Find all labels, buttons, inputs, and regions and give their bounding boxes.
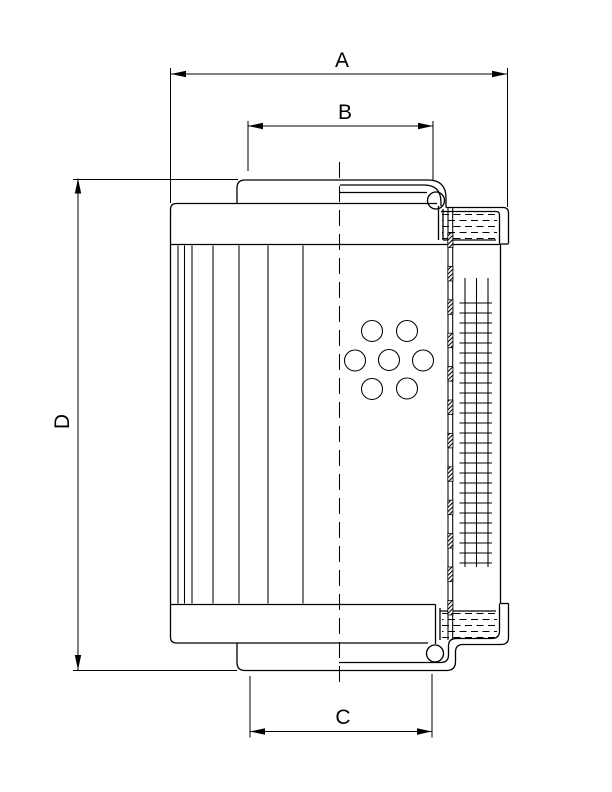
o-ring-top bbox=[428, 192, 445, 209]
bond-adhesive-bottom bbox=[442, 614, 497, 638]
arrowhead-right bbox=[418, 123, 433, 129]
perforation-hole bbox=[379, 350, 400, 371]
core-tube-hatch bbox=[448, 467, 453, 482]
core-tube-hatch bbox=[448, 266, 453, 281]
perforation-hole bbox=[413, 350, 434, 371]
top-spigot-left-edge bbox=[237, 180, 245, 203]
arrowhead-left bbox=[250, 728, 265, 734]
pleated-media bbox=[178, 246, 303, 604]
core-tube-hatch bbox=[448, 367, 453, 382]
dimension-d: D bbox=[51, 179, 238, 671]
dimension-label-a: A bbox=[335, 49, 349, 72]
end-cap-outline bbox=[171, 204, 438, 644]
arrowhead-right bbox=[492, 71, 507, 77]
bottom-spigot-edge bbox=[237, 643, 339, 671]
core-tube-hatch bbox=[448, 500, 453, 515]
dimension-label-d: D bbox=[51, 414, 74, 429]
dimension-label-b: B bbox=[338, 101, 352, 124]
drawing-sheet: A B C D bbox=[0, 0, 612, 792]
filter-element-technical-drawing: A B C D bbox=[0, 0, 612, 792]
dimension-a: A bbox=[171, 49, 508, 207]
arrowhead-left bbox=[171, 71, 186, 77]
arrowhead-bottom bbox=[75, 655, 81, 670]
bottom-shell-wrap-inner bbox=[339, 604, 500, 663]
core-tube-hatch-segments bbox=[448, 233, 453, 615]
core-tube-hatch bbox=[448, 333, 453, 348]
perforation-hole bbox=[345, 350, 366, 371]
element-left-view bbox=[171, 180, 500, 671]
core-tube-hatch bbox=[448, 233, 453, 248]
dimension-b: B bbox=[248, 101, 433, 181]
core-tube-hatch bbox=[448, 400, 453, 415]
perforation-hole bbox=[397, 378, 418, 399]
o-ring-bottom bbox=[427, 645, 444, 662]
support-mesh bbox=[460, 278, 493, 567]
core-tube-hatch bbox=[448, 600, 453, 615]
arrowhead-right bbox=[417, 728, 432, 734]
perforation-hole bbox=[397, 321, 418, 342]
arrowhead-top bbox=[75, 179, 81, 194]
core-tube-hatch bbox=[448, 567, 453, 582]
perforated-core-tube bbox=[448, 208, 453, 640]
core-tube-hatch bbox=[448, 534, 453, 549]
arrowhead-left bbox=[248, 123, 263, 129]
perforation-holes bbox=[345, 321, 434, 400]
perforation-hole bbox=[362, 321, 383, 342]
perforation-hole bbox=[362, 379, 383, 400]
dimension-label-c: C bbox=[335, 706, 350, 729]
core-tube-hatch bbox=[448, 300, 453, 315]
element-cross-section bbox=[339, 185, 509, 671]
dimension-c: C bbox=[250, 674, 432, 738]
core-tube-hatch bbox=[448, 433, 453, 448]
